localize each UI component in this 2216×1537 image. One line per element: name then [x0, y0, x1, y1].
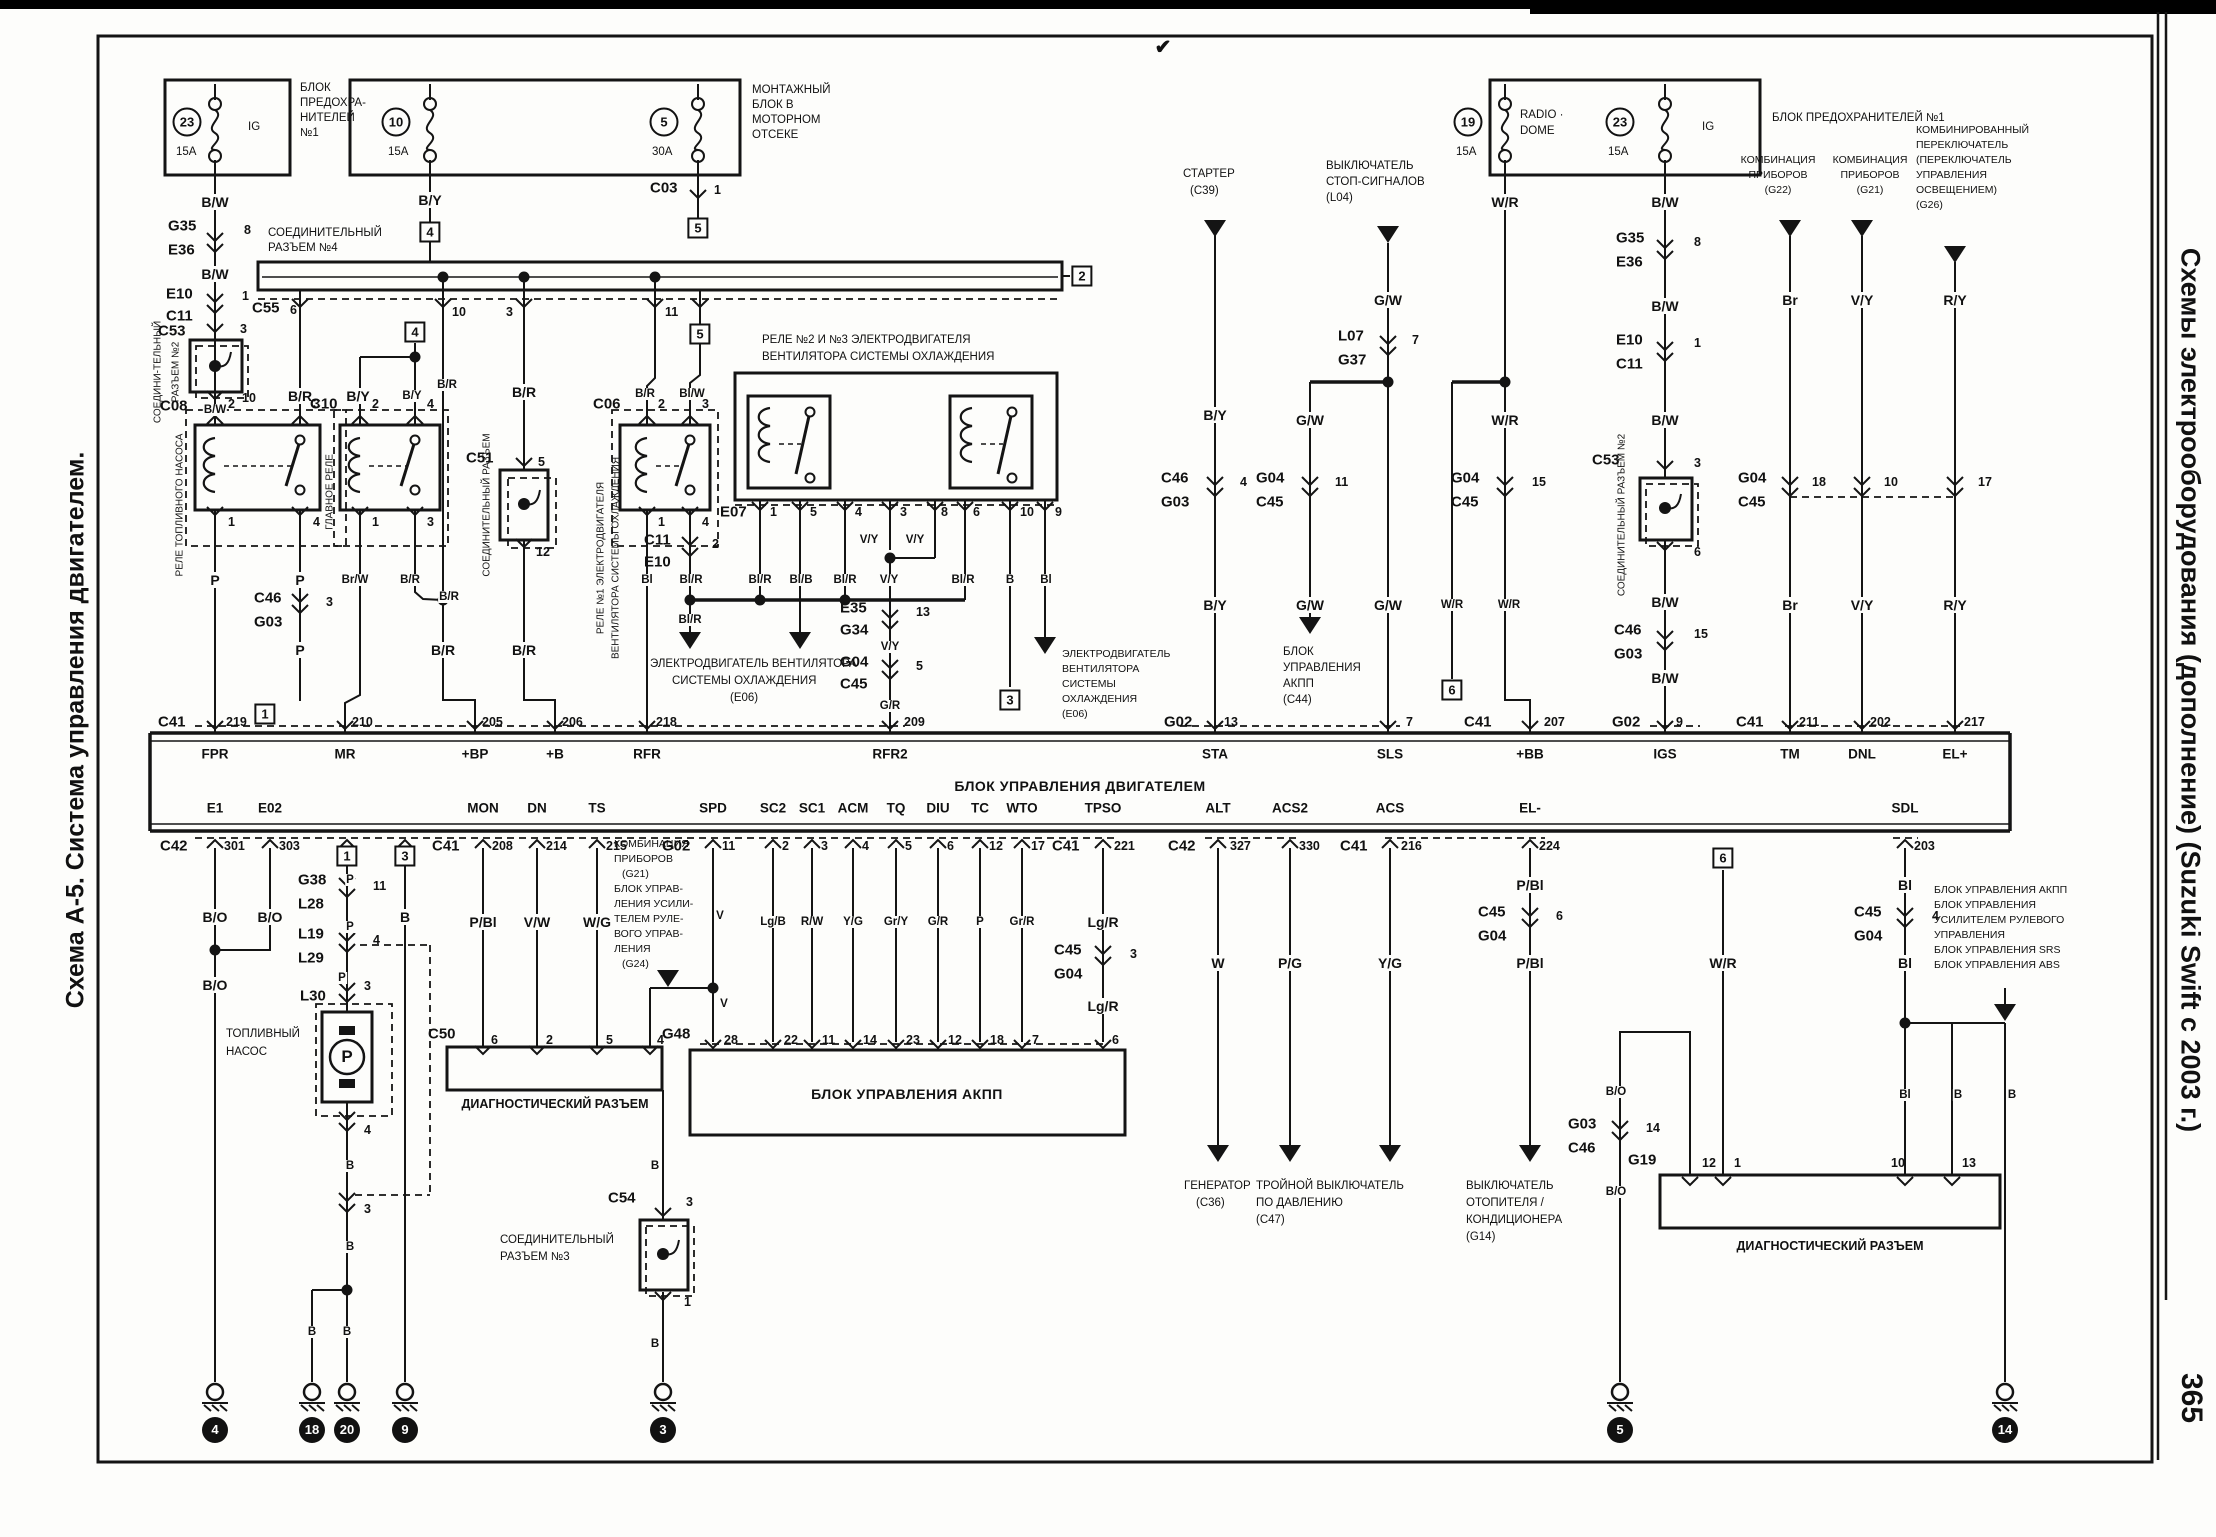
component-label: ПРЕДОХРА- [300, 97, 366, 109]
component-label: ПРИБОРОВ [614, 853, 673, 865]
connector-id: E10 [166, 286, 193, 303]
component-label: RADIO · [1520, 109, 1563, 121]
pin-number: 3 [702, 397, 709, 411]
wire-color-label: B/W [199, 266, 230, 282]
pin-number: 11 [665, 305, 678, 319]
connector-id: E10 [1616, 332, 1643, 349]
pin-number: 12 [948, 1033, 962, 1047]
fuse-number: 10 [382, 108, 411, 137]
pin-number: 6 [1556, 909, 1563, 923]
component-label: (G26) [1916, 199, 1943, 211]
wire-color-label: P/G [1276, 955, 1304, 971]
pin-number: 11 [722, 839, 735, 853]
pin-number: 330 [1299, 839, 1320, 853]
page-number: 365 [2174, 1373, 2208, 1423]
vertical-label: РЕЛЕ №1 ЭЛЕКТРОДВИГАТЕЛЯ [596, 482, 607, 634]
wire-color-label: Y/G [842, 916, 864, 928]
ecu-signal-name: TC [971, 801, 989, 816]
component-label: КОМБИНИРОВАННЫЙ [1916, 124, 2029, 136]
pin-number: 6 [1112, 1033, 1119, 1047]
connector-id: C11 [644, 532, 671, 549]
connector-id: G04 [1854, 928, 1882, 945]
wire-color-label: G/W [1294, 412, 1326, 428]
connector-id: L30 [300, 988, 326, 1005]
connector-id: G04 [1256, 470, 1284, 487]
component-label: СИСТЕМЫ ОХЛАЖДЕНИЯ [672, 675, 816, 687]
wire-color-label: B/Y [344, 388, 371, 404]
connector-id: C41 [1464, 714, 1492, 731]
component-label: ЭЛЕКТРОДВИГАТЕЛЬ [1062, 648, 1170, 660]
ecu-signal-name: +BP [462, 747, 489, 762]
component-label: БЛОК УПРАВЛЕНИЯ SRS [1934, 944, 2061, 956]
pin-number: 8 [244, 223, 251, 237]
pump-motor-letter: P [341, 1047, 352, 1067]
connector-id: C54 [608, 1190, 636, 1207]
wire-color-label: P [293, 572, 306, 588]
pin-number: 22 [784, 1033, 798, 1047]
pin-number: 4 [373, 933, 380, 947]
pin-number: 11 [822, 1033, 835, 1047]
component-label: (L04) [1326, 192, 1353, 204]
connector-id: C55 [252, 300, 280, 317]
ground-point-number: 18 [299, 1417, 325, 1443]
connector-id: C50 [428, 1026, 456, 1043]
connector-id: E07 [720, 504, 747, 521]
ground-point-number: 3 [650, 1417, 676, 1443]
component-label: УПРАВЛЕНИЯ [1283, 662, 1361, 674]
wire-color-label: B [650, 1160, 660, 1172]
ground-point-number: 14 [1992, 1417, 2018, 1443]
pin-number: 1 [1694, 336, 1701, 350]
wire-color-label: G/W [1294, 597, 1326, 613]
continuation-marker: 2 [1071, 266, 1092, 287]
wire-color-label: Bl [1039, 574, 1053, 586]
wire-color-label: P [337, 972, 347, 984]
wire-color-label: B/R [399, 574, 421, 586]
ecu-signal-name: TS [588, 801, 605, 816]
pin-number: 2 [228, 397, 235, 411]
connector-id: G03 [254, 614, 282, 631]
component-label: РЕЛЕ №2 И №3 ЭЛЕКТРОДВИГАТЕЛЯ [762, 334, 971, 346]
wire-color-label: W/R [1497, 599, 1521, 611]
wire-color-label: V/Y [859, 534, 880, 546]
component-label: ОСВЕЩЕНИЕМ) [1916, 184, 1997, 196]
wire-color-label: G/R [927, 916, 949, 928]
continuation-marker: 3 [394, 846, 415, 867]
ecu-signal-name: MR [335, 747, 356, 762]
wire-color-label: G/R [879, 700, 901, 712]
pin-number: 18 [1812, 475, 1826, 489]
component-label: (C36) [1196, 1197, 1225, 1209]
component-label: БЛОК УПРАВ- [614, 883, 683, 895]
connector-id: G35 [168, 218, 196, 235]
wire-color-label: B/R [634, 388, 656, 400]
wire-color-label: P [345, 874, 355, 886]
wire-color-label: B/W [203, 404, 227, 416]
pin-number: 10 [242, 391, 256, 405]
ecu-signal-name: EL+ [1942, 747, 1967, 762]
pin-number: 3 [326, 595, 333, 609]
component-label: БЛОК УПРАВЛЕНИЯ АКПП [1934, 884, 2067, 896]
connector-id: C45 [1054, 942, 1082, 959]
vertical-label: ВЕНТИЛЯТОРА СИСТЕМЫ ОХЛАЖДЕНИЯ [611, 457, 622, 659]
component-label: ГЕНЕРАТОР [1184, 1180, 1251, 1192]
continuation-marker: 4 [404, 322, 425, 343]
ecu-signal-name: DIU [926, 801, 949, 816]
component-label: ПЕРЕКЛЮЧАТЕЛЬ [1916, 139, 2008, 151]
pin-number: 1 [242, 289, 249, 303]
right-book-title: Схемы электрооборудования (дополнение) (… [2175, 248, 2206, 1132]
pin-number: 15 [1694, 627, 1708, 641]
component-label: ТОПЛИВНЫЙ [226, 1028, 300, 1040]
connector-id: C10 [310, 396, 338, 413]
pin-number: 5 [606, 1033, 613, 1047]
connector-id: G19 [1628, 1152, 1656, 1169]
wire-color-label: V/Y [1849, 292, 1876, 308]
component-label: КОНДИЦИОНЕРА [1466, 1214, 1562, 1226]
component-label: ОТОПИТЕЛЯ / [1466, 1197, 1544, 1209]
wire-color-label: B/R [429, 642, 457, 658]
left-schema-title: Схема А-5. Система управления двигателем… [62, 452, 91, 1009]
wire-color-label: B/O [201, 909, 230, 925]
component-label: ОХЛАЖДЕНИЯ [1062, 693, 1137, 705]
connector-id: L07 [1338, 328, 1364, 345]
pin-number: 206 [562, 715, 583, 729]
component-label: ЭЛЕКТРОДВИГАТЕЛЬ ВЕНТИЛЯТОРА [650, 658, 857, 670]
wire-color-label: R/Y [1941, 292, 1968, 308]
pin-number: 1 [714, 183, 721, 197]
fuse-number: 19 [1454, 108, 1483, 137]
wire-color-label: B/O [256, 909, 285, 925]
connector-id: C45 [1854, 904, 1882, 921]
connector-id: G03 [1614, 646, 1642, 663]
wire-color-label: B/W [1649, 298, 1680, 314]
pin-number: 4 [313, 515, 320, 529]
pin-number: 1 [684, 1295, 691, 1309]
component-label: ПРИБОРОВ [1841, 169, 1900, 181]
pin-number: 1 [658, 515, 665, 529]
pin-number: 5 [810, 505, 817, 519]
component-label: УСИЛИТЕЛЕМ РУЛЕВОГО [1934, 914, 2064, 926]
component-label: РАЗЪЕМ №4 [268, 242, 338, 254]
ecu-signal-name: ALT [1205, 801, 1230, 816]
wire-color-label: B/W [1649, 412, 1680, 428]
connector-id: G04 [1478, 928, 1506, 945]
pin-number: 4 [862, 839, 869, 853]
component-label: КОМБИНАЦИЯ [614, 838, 689, 850]
pin-number: 10 [1020, 505, 1034, 519]
connector-id: C42 [160, 838, 188, 855]
pin-number: 3 [1694, 456, 1701, 470]
component-label: (G21) [1857, 184, 1884, 196]
wire-color-label: Lg/R [1085, 914, 1120, 930]
wire-color-label: B/O [1605, 1086, 1627, 1098]
ecu-signal-name: MON [467, 801, 499, 816]
wire-color-label: Lg/B [759, 916, 787, 928]
component-label: ТРОЙНОЙ ВЫКЛЮЧАТЕЛЬ [1256, 1180, 1404, 1192]
pin-number: 1 [770, 505, 777, 519]
component-label: (E06) [730, 692, 758, 704]
pin-number: 2 [712, 537, 719, 551]
pin-number: 7 [1032, 1033, 1039, 1047]
pin-number: 13 [1962, 1156, 1976, 1170]
wire-color-label: B [307, 1326, 317, 1338]
ecu-signal-name: E02 [258, 801, 282, 816]
block-label: БЛОК УПРАВЛЕНИЯ ДВИГАТЕЛЕМ [954, 778, 1205, 794]
component-label: ВОГО УПРАВ- [614, 928, 683, 940]
wire-color-label: Bl/R [951, 574, 976, 586]
pin-number: 5 [916, 659, 923, 673]
connector-id: G37 [1338, 352, 1366, 369]
wire-color-label: Br/W [341, 574, 370, 586]
pin-number: 303 [279, 839, 300, 853]
pin-number: 1 [372, 515, 379, 529]
connector-caption: ДИАГНОСТИЧЕСКИЙ РАЗЪЕМ [1736, 1239, 1923, 1253]
ecu-signal-name: ACM [838, 801, 869, 816]
wire-color-label: R/Y [1941, 597, 1968, 613]
connector-id: G48 [662, 1026, 690, 1043]
wire-color-label: V/W [522, 914, 552, 930]
pin-number: 6 [290, 303, 297, 317]
pin-number: 203 [1914, 839, 1935, 853]
pin-number: 5 [905, 839, 912, 853]
component-label: СТАРТЕР [1183, 168, 1235, 180]
connector-id: G35 [1616, 230, 1644, 247]
wire-color-label: V/Y [905, 534, 926, 546]
component-label: СТОП-СИГНАЛОВ [1326, 176, 1425, 188]
pin-number: 221 [1114, 839, 1135, 853]
pin-number: 207 [1544, 715, 1565, 729]
connector-id: G03 [1568, 1116, 1596, 1133]
ecu-signal-name: SPD [699, 801, 727, 816]
pin-number: 214 [546, 839, 567, 853]
ground-point-number: 5 [1607, 1417, 1633, 1443]
component-label: АКПП [1283, 678, 1314, 690]
pin-number: 11 [373, 879, 386, 893]
wire-color-label: B/O [201, 977, 230, 993]
continuation-marker: 1 [336, 846, 357, 867]
component-label: №1 [300, 127, 319, 139]
wire-color-label: R/W [800, 916, 824, 928]
pin-number: 12 [989, 839, 1003, 853]
wire-color-label: W/R [1440, 599, 1464, 611]
wire-color-label: W/R [1707, 955, 1738, 971]
component-label: БЛОК В [752, 99, 794, 111]
connector-id: C45 [840, 676, 868, 693]
wire-color-label: Bl/R [678, 614, 703, 626]
wire-color-label: B [1005, 574, 1015, 586]
component-label: БЛОК ПРЕДОХРАНИТЕЛЕЙ №1 [1772, 112, 1945, 124]
ecu-signal-name: ACS [1376, 801, 1405, 816]
component-label: РАЗЪЕМ №3 [500, 1251, 570, 1263]
component-label: ТЕЛЕМ РУЛЕ- [614, 913, 683, 925]
component-label: НИТЕЛЕЙ [300, 112, 355, 124]
component-label: БЛОК УПРАВЛЕНИЯ ABS [1934, 959, 2060, 971]
component-label: ПРИБОРОВ [1749, 169, 1808, 181]
wire-color-label: P [208, 572, 221, 588]
component-label: IG [248, 121, 260, 133]
wire-color-label: Y/G [1376, 955, 1404, 971]
wire-color-label: B/W [1649, 194, 1680, 210]
pin-number: 2 [546, 1033, 553, 1047]
pin-number: 9 [1676, 715, 1683, 729]
connector-id: E36 [168, 242, 195, 259]
wire-color-label: V/Y [879, 574, 900, 586]
connector-id: C45 [1451, 494, 1479, 511]
pin-number: 205 [482, 715, 503, 729]
wire-color-label: Gr/R [1009, 916, 1036, 928]
pin-number: 5 [538, 455, 545, 469]
wire-color-label: Bl/R [833, 574, 858, 586]
connector-id: C45 [1256, 494, 1284, 511]
ecu-signal-name: RFR2 [872, 747, 907, 762]
diagram-labels-layer: 23IG15A1015A530A19RADIO ·DOME15A23IG15AБ… [0, 0, 2216, 1537]
wire-color-label: Br [1780, 597, 1800, 613]
component-label: ОТСЕКЕ [752, 129, 798, 141]
fuse-number: 23 [173, 108, 202, 137]
wire-color-label: V/Y [880, 641, 901, 653]
ecu-signal-name: SDL [1892, 801, 1919, 816]
component-label: 15A [388, 146, 408, 158]
pin-number: 12 [536, 545, 550, 559]
component-label: ЛЕНИЯ УСИЛИ- [614, 898, 693, 910]
vertical-label: РАЗЪЕМ №2 [171, 342, 182, 403]
pin-number: 13 [1224, 715, 1238, 729]
connector-id: G03 [1161, 494, 1189, 511]
pin-number: 202 [1870, 715, 1891, 729]
component-label: ВЕНТИЛЯТОРА [1062, 663, 1139, 675]
component-label: МОНТАЖНЫЙ [752, 84, 831, 96]
pin-number: 6 [973, 505, 980, 519]
wire-color-label: P/Bl [1514, 955, 1545, 971]
vertical-label: СОЕДИНИТЕЛЬНЫЙ РАЗЪЕМ [482, 433, 493, 576]
ecu-signal-name: SC1 [799, 801, 825, 816]
connector-id: G02 [1612, 714, 1640, 731]
pin-number: 3 [364, 979, 371, 993]
pin-number: 11 [1335, 475, 1348, 489]
component-label: КОМБИНАЦИЯ [1833, 154, 1908, 166]
connector-id: E35 [840, 600, 867, 617]
wire-color-label: B [342, 1326, 352, 1338]
wire-color-label: Bl/R [748, 574, 773, 586]
pin-number: 10 [1884, 475, 1898, 489]
pin-number: 18 [990, 1033, 1004, 1047]
wire-color-label: Br [1780, 292, 1800, 308]
pin-number: 17 [1031, 839, 1045, 853]
connector-id: C41 [432, 838, 460, 855]
ecu-signal-name: SLS [1377, 747, 1403, 762]
vertical-label: ГЛАВНОЕ РЕЛЕ [325, 454, 336, 530]
ecu-signal-name: ACS2 [1272, 801, 1308, 816]
wire-color-label: B/O [1605, 1186, 1627, 1198]
fuse-number: 23 [1606, 108, 1635, 137]
connector-id: C41 [1736, 714, 1764, 731]
vertical-label: РЕЛЕ ТОПЛИВНОГО НАСОСА [175, 434, 186, 577]
block-label: БЛОК УПРАВЛЕНИЯ АКПП [811, 1086, 1003, 1102]
wire-color-label: G/W [1372, 292, 1404, 308]
pin-number: 3 [506, 305, 513, 319]
component-label: УПРАВЛЕНИЯ [1916, 169, 1987, 181]
component-label: (G21) [622, 868, 649, 880]
ecu-signal-name: STA [1202, 747, 1228, 762]
pin-number: 2 [658, 397, 665, 411]
connector-id: C45 [1738, 494, 1766, 511]
continuation-marker: 3 [999, 690, 1020, 711]
pin-number: 7 [1406, 715, 1413, 729]
wiring-diagram-page: 23IG15A1015A530A19RADIO ·DOME15A23IG15AБ… [0, 0, 2216, 1537]
connector-id: C41 [1340, 838, 1368, 855]
pin-number: 301 [224, 839, 245, 853]
pin-number: 218 [656, 715, 677, 729]
wire-color-label: P [975, 916, 985, 928]
connector-id: C45 [1478, 904, 1506, 921]
pin-number: 6 [1694, 545, 1701, 559]
pin-number: 8 [941, 505, 948, 519]
ground-point-number: 9 [392, 1417, 418, 1443]
component-label: ПО ДАВЛЕНИЮ [1256, 1197, 1343, 1209]
pin-number: 6 [947, 839, 954, 853]
wire-color-label: P [293, 642, 306, 658]
ecu-signal-name: FPR [202, 747, 229, 762]
connector-id: G34 [840, 622, 868, 639]
pin-number: 15 [1532, 475, 1546, 489]
wire-color-label: Bl/B [789, 574, 814, 586]
continuation-marker: 1 [254, 704, 275, 725]
wire-color-label: G/W [1372, 597, 1404, 613]
ecu-signal-name: E1 [207, 801, 224, 816]
ecu-signal-name: EL- [1519, 801, 1541, 816]
component-label: (G14) [1466, 1231, 1495, 1243]
pin-number: 14 [1646, 1121, 1660, 1135]
connector-id: G04 [1451, 470, 1479, 487]
wire-color-label: V [715, 910, 725, 922]
wire-color-label: B/Y [1201, 407, 1228, 423]
pin-number: 224 [1539, 839, 1560, 853]
wire-color-label: B/W [1649, 670, 1680, 686]
wire-color-label: B/Y [401, 390, 422, 402]
connector-id: E10 [644, 554, 671, 571]
component-label: ВЕНТИЛЯТОРА СИСТЕМЫ ОХЛАЖДЕНИЯ [762, 351, 994, 363]
connector-id: C03 [650, 180, 678, 197]
connector-id: G02 [1164, 714, 1192, 731]
component-label: БЛОК [1283, 646, 1314, 658]
pin-number: 211 [1799, 715, 1819, 729]
connector-id: C41 [1052, 838, 1080, 855]
pin-number: 6 [491, 1033, 498, 1047]
pin-number: 9 [1055, 505, 1062, 519]
component-label: СОЕДИНИТЕЛЬНЫЙ [268, 227, 382, 239]
pin-number: 3 [821, 839, 828, 853]
wire-color-label: Bl [1896, 877, 1914, 893]
component-label: СИСТЕМЫ [1062, 678, 1116, 690]
wire-color-label: W [1209, 955, 1226, 971]
pin-number: 17 [1978, 475, 1992, 489]
pin-number: 327 [1230, 839, 1251, 853]
wire-color-label: W/R [1489, 412, 1520, 428]
continuation-marker: 4 [419, 222, 440, 243]
wire-color-label: B [1953, 1089, 1963, 1101]
component-label: УПРАВЛЕНИЯ [1934, 929, 2005, 941]
pin-number: 28 [724, 1033, 738, 1047]
component-label: DOME [1520, 125, 1555, 137]
pin-number: 4 [702, 515, 709, 529]
pin-number: 216 [1401, 839, 1422, 853]
continuation-marker: 5 [689, 324, 710, 345]
connector-caption: ДИАГНОСТИЧЕСКИЙ РАЗЪЕМ [461, 1097, 648, 1111]
pin-number: 3 [364, 1202, 371, 1216]
component-label: ВЫКЛЮЧАТЕЛЬ [1466, 1180, 1554, 1192]
continuation-marker: 5 [687, 218, 708, 239]
